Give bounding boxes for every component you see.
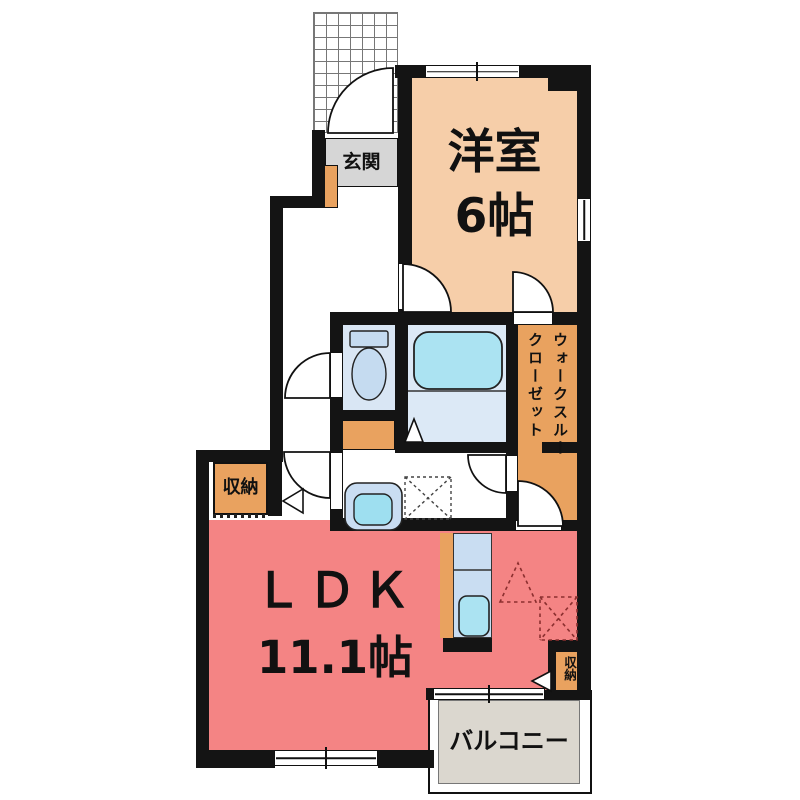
washer-space-marker [405, 477, 451, 519]
western-room-label: 洋室 [412, 128, 577, 177]
ldk-door-wedge [283, 489, 303, 513]
toilet-tank-icon [350, 331, 388, 347]
toilet-bowl-icon [352, 348, 386, 400]
walk-through-closet-label: ウォークスルー クローゼット [520, 332, 572, 542]
bathtub-icon [414, 332, 502, 389]
toilet-door-arc [285, 353, 330, 398]
floor-plan: 玄関 収納 バルコニー [0, 0, 800, 800]
storage-right-label: 収納 [556, 656, 576, 688]
ldk-label: ＬＤＫ [215, 566, 455, 616]
western-room-door-arc [403, 264, 451, 312]
kitchen-sink-icon [459, 596, 489, 636]
bath-door-wedge [405, 419, 423, 442]
dashed-square-marker [540, 597, 577, 640]
western-room-size: 6帖 [412, 192, 577, 241]
washroom-door-arc [284, 452, 330, 498]
closet-top-door-arc [513, 272, 553, 312]
dashed-triangle-marker [500, 563, 536, 602]
closet-washroom-door-arc [468, 455, 506, 493]
ldk-size: 11.1帖 [215, 634, 455, 681]
entry-door-arc [328, 68, 393, 133]
storage-right-door-wedge [532, 671, 551, 691]
washbasin-bowl-icon [354, 494, 392, 525]
